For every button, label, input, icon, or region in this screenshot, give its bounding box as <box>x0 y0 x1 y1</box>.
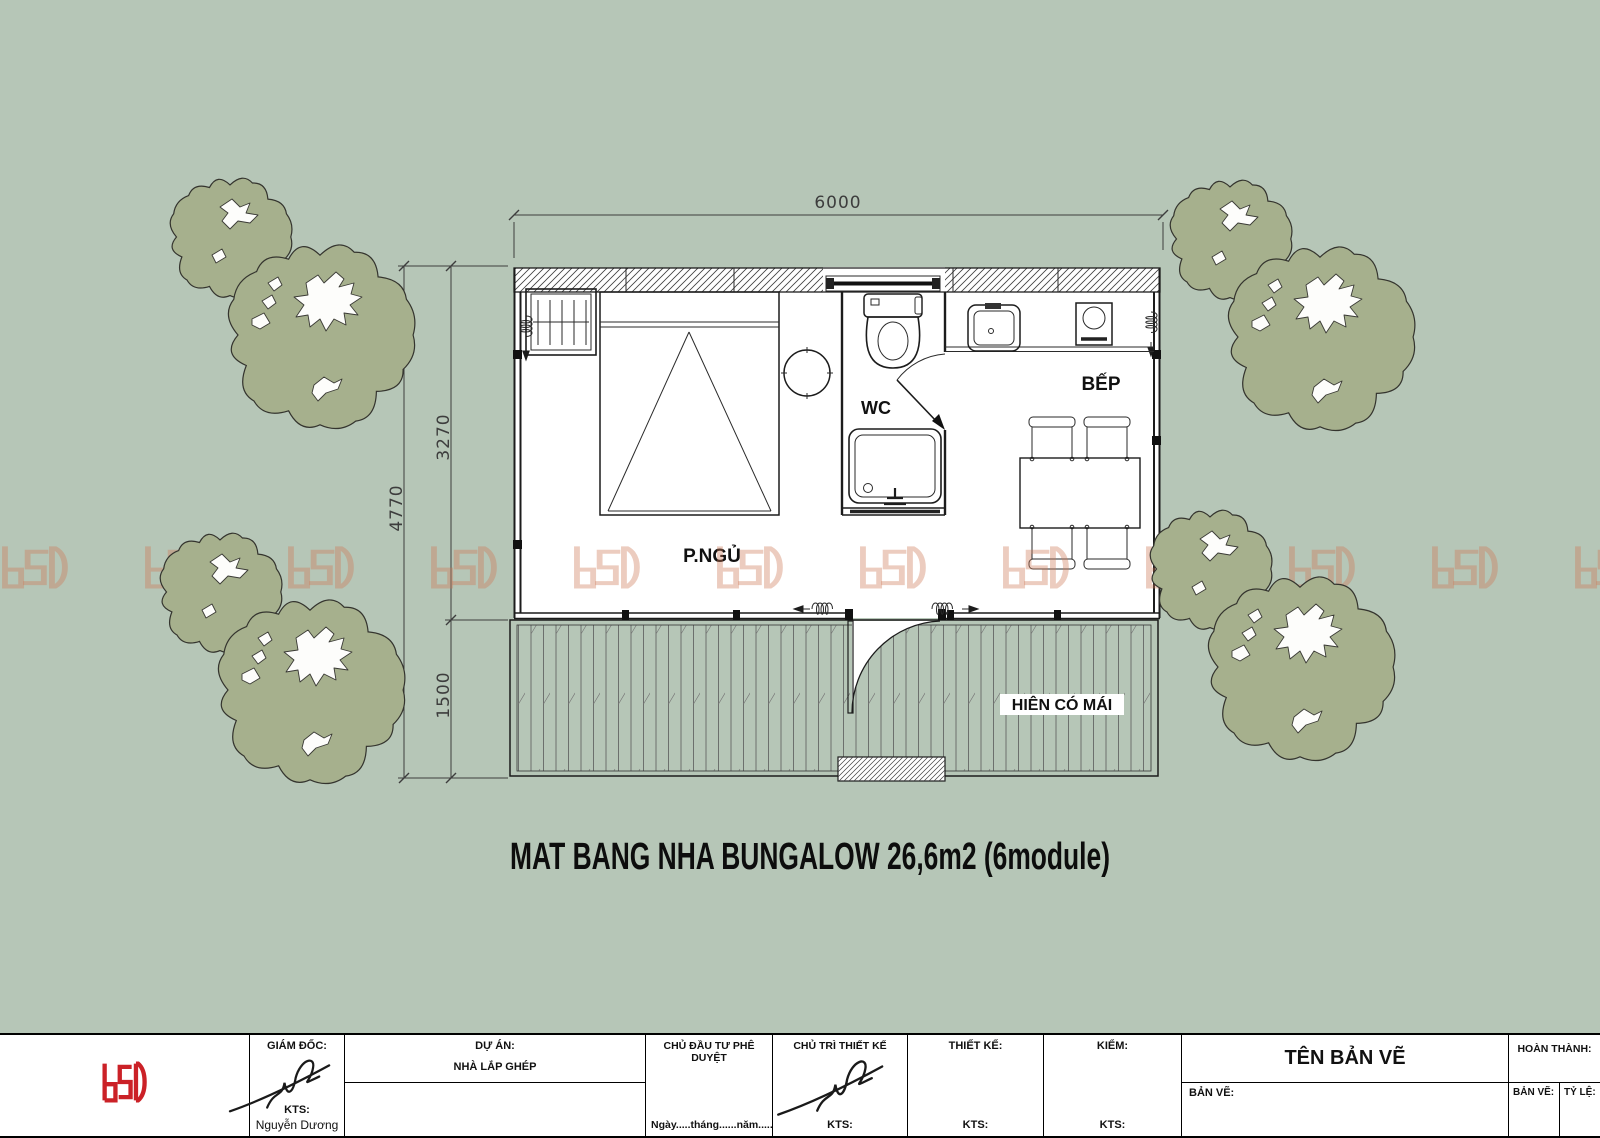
bedroom-label: P.NGỦ <box>683 545 741 567</box>
director-title: KTS: <box>250 1104 344 1116</box>
company-logo <box>96 1057 150 1107</box>
investor-cell: CHỦ ĐẦU TƯ PHÊ DUYỆT Ngày.....tháng.....… <box>645 1035 772 1136</box>
director-name: Nguyễn Dương <box>250 1118 344 1132</box>
kitchen-label: BẾP <box>1081 373 1120 395</box>
director-label: GIÁM ĐỐC: <box>250 1040 344 1052</box>
project-cell-divider <box>345 1082 645 1083</box>
house-plan: P.NGỦ WC BẾP HIÊN CÓ MÁI <box>510 267 1161 781</box>
tree-cluster-bottom-right <box>1150 510 1395 760</box>
designer-title: KTS: <box>908 1119 1043 1131</box>
dsd-watermark <box>5 548 65 586</box>
designer-cell: THIẾT KẾ: KTS: <box>907 1035 1043 1136</box>
director-cell: GIÁM ĐỐC: KTS: Nguyễn Dương <box>249 1035 344 1136</box>
tree-cluster-bottom-left <box>160 533 405 783</box>
lead-designer-cell: CHỦ TRÌ THIẾT KẾ KTS: <box>772 1035 907 1136</box>
lead-designer-signature <box>773 1053 903 1119</box>
project-name: NHÀ LẮP GHÉP <box>345 1061 645 1073</box>
dsd-watermark <box>434 548 494 586</box>
checker-cell: KIỂM: KTS: <box>1043 1035 1181 1136</box>
bungalow-floor-plan-sheet: 6000 3270 4770 1500 <box>0 0 1600 1138</box>
plan-canvas: 6000 3270 4770 1500 <box>0 0 1600 1138</box>
completion-cell: HOÀN THÀNH: BẢN VẼ: TỶ LỆ: <box>1508 1035 1600 1136</box>
project-label: DỰ ÁN: <box>345 1040 645 1052</box>
checker-label: KIỂM: <box>1044 1040 1181 1052</box>
drawing-name-cell: TÊN BẢN VẼ BẢN VẼ: <box>1181 1035 1508 1136</box>
sheet-label: BẢN VẼ: <box>1513 1087 1554 1098</box>
drawing-label: BẢN VẼ: <box>1189 1087 1234 1099</box>
checker-title: KTS: <box>1044 1119 1181 1131</box>
tree-cluster-top-right <box>1170 180 1415 430</box>
investor-label: CHỦ ĐẦU TƯ PHÊ DUYỆT <box>646 1040 772 1064</box>
drawing-name-label: TÊN BẢN VẼ <box>1182 1047 1508 1070</box>
dsd-watermark <box>1435 548 1495 586</box>
drawing-name-divider <box>1182 1082 1508 1083</box>
wc-label: WC <box>861 398 891 418</box>
lead-designer-title: KTS: <box>773 1119 907 1131</box>
project-cell: DỰ ÁN: NHÀ LẮP GHÉP <box>344 1035 645 1136</box>
sheet-title: MAT BANG NHA BUNGALOW 26,6m2 (6module) <box>510 836 1110 878</box>
dsd-watermark <box>291 548 351 586</box>
wc-window <box>826 276 940 291</box>
sheet-scale-divider <box>1559 1082 1560 1136</box>
lead-designer-label: CHỦ TRÌ THIẾT KẾ <box>773 1040 907 1052</box>
dim-total-width: 6000 <box>814 193 861 213</box>
tree-cluster-top-left <box>170 178 415 428</box>
scale-label: TỶ LỆ: <box>1564 1087 1596 1098</box>
title-block: GIÁM ĐỐC: KTS: Nguyễn Dương DỰ ÁN: NHÀ L… <box>0 1033 1600 1138</box>
completed-label: HOÀN THÀNH: <box>1509 1043 1600 1055</box>
designer-label: THIẾT KẾ: <box>908 1040 1043 1052</box>
dim-total-depth: 4770 <box>387 484 407 531</box>
dim-porch-depth: 1500 <box>434 671 454 718</box>
dsd-watermark <box>1578 548 1600 586</box>
dim-main-depth: 3270 <box>434 413 454 460</box>
title-block-logo-cell <box>0 1035 249 1136</box>
completion-divider <box>1509 1082 1600 1083</box>
date-line: Ngày.....tháng......năm..... <box>651 1119 773 1131</box>
top-wall <box>514 267 1160 293</box>
porch-label: HIÊN CÓ MÁI <box>1012 695 1112 714</box>
entry-step <box>838 757 945 781</box>
